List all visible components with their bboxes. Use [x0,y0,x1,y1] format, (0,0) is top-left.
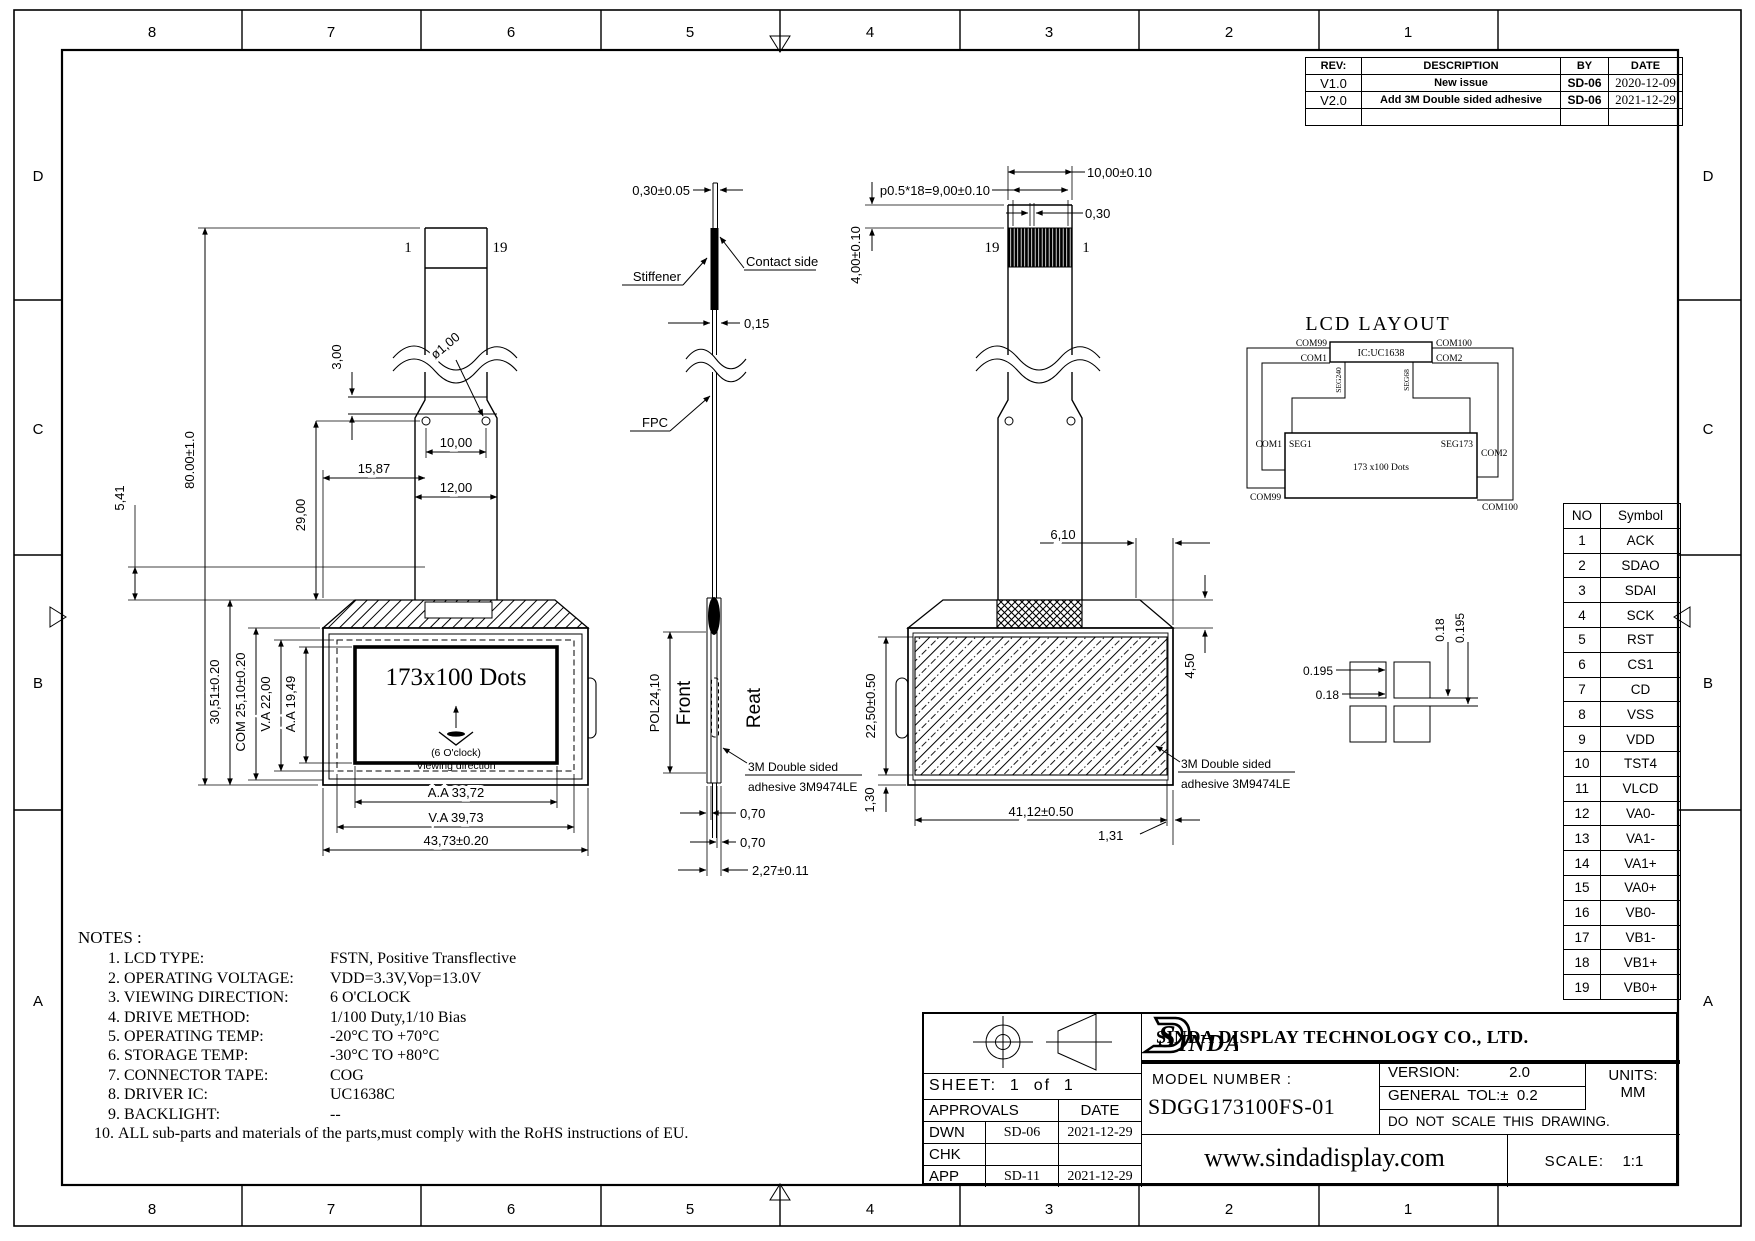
pin-number: 1 [404,240,412,256]
title-block: SHEET: 1 of 1 APPROVALS DATE DWN SD-06 2… [922,1012,1678,1185]
driver-ic: IC:UC1638 [1358,348,1405,359]
approval-role: APP [924,1166,986,1187]
revision-table: REV: DESCRIPTION BY DATE V1.0 New issue … [1305,57,1683,126]
note-item: 9. BACKLIGHT:-- [78,1105,758,1124]
notes-title: NOTES : [78,928,758,947]
zone-row: A [33,993,43,1010]
version-value: 2.0 [1509,1064,1530,1081]
pin-header-no: NO [1564,504,1601,529]
pin-row: 10TST4 [1564,751,1681,776]
website: www.sindadisplay.com [1142,1135,1507,1173]
pin-row: 2SDAO [1564,553,1681,578]
pin-row: 4SCK [1564,603,1681,628]
rev-description: New issue [1362,75,1561,92]
dim-front-pol: 0,70 [740,806,765,821]
pin-number: 19 [985,240,1000,256]
com-label: COM2 [1481,449,1508,459]
note-item: 8. DRIVER IC:UC1638C [78,1085,758,1104]
stiffener-label: Stiffener [633,269,682,284]
back-view: 19 1 10,00±0.10 p0.5*18=9,00±0.10 0,30 4… [848,165,1295,845]
note-item: 5. OPERATING TEMP:-20°C TO +70°C [78,1027,758,1046]
dim-fold: 3,00 [329,344,344,369]
dim-stack-total: 2,27±0.11 [752,863,809,878]
dim-adhesive-height: 22,50±0.50 [863,674,878,739]
pin-row: 3SDAI [1564,578,1681,603]
dim-tail-width: 12,00 [440,480,473,495]
zone-col: 8 [148,1201,156,1218]
dim-dot-gap: 0.18 [1433,618,1447,642]
rev-id: V1.0 [1306,75,1362,92]
approval-by: SD-06 [986,1122,1059,1144]
pin-number: 19 [493,240,508,256]
dim-hole-pitch: 10,00 [440,435,473,450]
zone-col: 3 [1045,1201,1053,1218]
rev-date: 2020-12-09 [1609,75,1683,92]
tolerance-row: GENERAL TOL:± 0.2 [1380,1087,1585,1110]
approval-date: 2021-12-29 [1059,1166,1142,1187]
pin-row: 7CD [1564,677,1681,702]
dim-com-height: COM 25,10±0.20 [233,653,248,752]
model-cell: MODEL NUMBER : SDGG173100FS-01 [1142,1064,1380,1134]
dim-va-height: V.A 22,00 [258,676,273,731]
adhesive-note: adhesive 3M9474LE [1181,777,1290,791]
dim-hole: ø1,00 [428,329,463,362]
pin-table: NO Symbol 1ACK 2SDAO 3SDAI 4SCK 5RST 6CS… [1563,503,1681,1000]
dim-back-pol: 0,70 [740,835,765,850]
pin-row: 16VB0- [1564,900,1681,925]
dots-label: 173 x100 Dots [1353,463,1409,473]
zone-col: 6 [507,1201,515,1218]
revision-row-empty [1306,109,1683,126]
front-face-label: Front [674,680,695,725]
seg-label: SEG1 [1289,440,1312,450]
pin-row: 15VA0+ [1564,875,1681,900]
pin-row: 9VDD [1564,727,1681,752]
zone-row: B [1703,675,1713,692]
rev-by: SD-06 [1561,75,1609,92]
pin-row: 11VLCD [1564,776,1681,801]
com-label: COM1 [1256,440,1283,450]
units-cell: UNITS: MM [1585,1064,1680,1110]
adhesive-note: 3M Double sided [748,760,838,774]
drawing-sheet: 8 7 6 5 4 3 2 1 8 7 6 5 4 3 2 1 D C B A … [0,0,1755,1241]
note-item: 3. VIEWING DIRECTION:6 O'CLOCK [78,988,758,1007]
pad-detail: 0.195 0.18 0.18 0.195 [1303,613,1478,742]
approval-by [986,1144,1059,1166]
rev-header: DESCRIPTION [1362,58,1561,75]
dim-tip: 0,30±0.05 [632,183,690,198]
note-item: 2. OPERATING VOLTAGE:VDD=3.3V,Vop=13.0V [78,969,758,988]
rev-header: REV: [1306,58,1362,75]
zone-row: B [33,675,43,692]
zone-col: 4 [866,24,874,41]
svg-text:INDA: INDA [1177,1031,1238,1057]
dim-total-length: 80.00±1.0 [182,431,197,489]
rear-face-label: Reat [744,687,765,728]
note-item: 1. LCD TYPE:FSTN, Positive Transflective [78,949,758,968]
dim-pad-pitch: p0.5*18=9,00±0.10 [880,183,990,198]
lcd-layout: LCD LAYOUT IC:UC1638 173 x100 Dots COM99… [1247,313,1518,513]
approval-date: 2021-12-29 [1059,1122,1142,1144]
revision-row: V1.0 New issue SD-06 2020-12-09 [1306,75,1683,92]
dim-bare-tail: 4,00±0.10 [848,226,863,284]
pin-header-symbol: Symbol [1601,504,1681,529]
rev-by: SD-06 [1561,92,1609,109]
date-header: DATE [1059,1100,1142,1122]
side-view: 0,30±0.05 Stiffener Contact side 0,15 FP… [622,183,862,878]
scale-cell: SCALE: 1:1 [1507,1134,1680,1187]
no-scale-row: DO NOT SCALE THIS DRAWING. [1380,1110,1680,1134]
zone-col: 4 [866,1201,874,1218]
rev-description: Add 3M Double sided adhesive [1362,92,1561,109]
dim-module-height: 30,51±0.20 [207,660,222,725]
com-label: COM1 [1301,354,1328,364]
approval-role: CHK [924,1144,986,1166]
rev-id: V2.0 [1306,92,1362,109]
units-value: MM [1586,1084,1680,1101]
sheet-number: SHEET: 1 of 1 [924,1074,1142,1100]
com-label: COM99 [1250,493,1281,503]
note-item: 7. CONNECTOR TAPE:COG [78,1066,758,1085]
company-header: S INDA SINDA DISPLAY TECHNOLOGY CO., LTD… [1142,1014,1680,1064]
pin-row: 18VB1+ [1564,950,1681,975]
com-label: COM100 [1482,503,1518,513]
zone-row: D [1703,168,1714,185]
rev-date: 2021-12-29 [1609,92,1683,109]
projection-symbol-cell [924,1014,1142,1074]
display-resolution: 173x100 Dots [386,664,527,691]
pin-number: 1 [1082,240,1090,256]
dim-va-width: V.A 39,73 [428,810,483,825]
dim-dot-gap: 0.18 [1316,688,1340,702]
pin-row: 8VSS [1564,702,1681,727]
version-label: VERSION: [1380,1064,1460,1081]
zone-row: C [1703,421,1714,438]
zone-col: 7 [327,1201,335,1218]
seg-label: SEG68 [1402,369,1411,391]
notes-section: NOTES : 1. LCD TYPE:FSTN, Positive Trans… [78,928,758,1143]
scale-label: SCALE: [1545,1153,1604,1170]
zone-row: C [33,421,44,438]
no-scale-note: DO NOT SCALE THIS DRAWING. [1380,1114,1610,1129]
pin-row: 13VA1- [1564,826,1681,851]
approval-role: DWN [924,1122,986,1144]
viewing-clock: (6 O'clock) [431,747,481,759]
pin-row: 5RST [1564,627,1681,652]
version-row: VERSION: 2.0 [1380,1064,1585,1087]
zone-col: 7 [327,24,335,41]
pin-row: 14VA1+ [1564,851,1681,876]
zone-col: 8 [148,24,156,41]
dim-adhesive-width: 41,12±0.50 [1009,804,1074,819]
pin-row: 19VB0+ [1564,975,1681,1000]
dim-tail-offset: 15,87 [358,461,391,476]
dim-edge-bottom: 1,30 [862,787,877,812]
note-item: 4. DRIVE METHOD:1/100 Duty,1/10 Bias [78,1008,758,1027]
front-view: 1 19 173x100 Dots (6 O'clock) Viewing di… [112,228,596,856]
general-tolerance: GENERAL TOL:± 0.2 [1380,1087,1538,1104]
note-item: 6. STORAGE TEMP:-30°C TO +80°C [78,1046,758,1065]
approvals-header: APPROVALS [924,1100,1059,1122]
dim-tail-width-top: 10,00±0.10 [1087,165,1152,180]
dim-corner: 4,50 [1182,653,1197,678]
approval-date [1059,1144,1142,1166]
pin-row: 1ACK [1564,528,1681,553]
note-item: 10.ALL sub-parts and materials of the pa… [78,1124,758,1143]
zone-col: 3 [1045,24,1053,41]
zone-col: 6 [507,24,515,41]
rev-header: BY [1561,58,1609,75]
zone-col: 5 [686,24,694,41]
pin-row: 17VB1- [1564,925,1681,950]
viewing-direction: Viewing direction [416,760,495,772]
com-label: COM99 [1296,339,1327,349]
dim-aa-height: A.A 19,49 [283,676,298,732]
zone-col: 1 [1404,1201,1412,1218]
dim-fpc-thickness: 0,15 [744,316,769,331]
seg-label: SEG173 [1441,440,1473,450]
zone-col: 5 [686,1201,694,1218]
dim-module-width: 43,73±0.20 [424,833,489,848]
dim-dot-gap: 0.195 [1303,664,1333,678]
zone-row: A [1703,993,1713,1010]
com-label: COM2 [1436,354,1463,364]
units-label: UNITS: [1586,1064,1680,1084]
zone-row: D [33,168,44,185]
adhesive-note: 3M Double sided [1181,757,1271,771]
dim-dot-gap: 0.195 [1453,613,1467,643]
pin-row: 6CS1 [1564,652,1681,677]
dim-top-offset: 5,41 [112,485,127,510]
svg-text:S: S [1158,1018,1176,1054]
zone-col: 1 [1404,24,1412,41]
contact-side-label: Contact side [746,254,818,269]
dim-tail-length: 29,00 [293,499,308,532]
model-number-label: MODEL NUMBER : [1142,1064,1379,1088]
adhesive-note: adhesive 3M9474LE [748,780,857,794]
dim-pol: POL24,10 [647,674,662,733]
revision-row: V2.0 Add 3M Double sided adhesive SD-06 … [1306,92,1683,109]
scale-value: 1:1 [1622,1153,1643,1170]
seg-label: SEG240 [1334,367,1343,393]
model-number: SDGG173100FS-01 [1142,1088,1379,1120]
dim-pad-width: 0,30 [1085,206,1110,221]
zone-col: 2 [1225,24,1233,41]
dim-edge-right: 1,31 [1098,828,1123,843]
dim-gap: 6,10 [1050,527,1075,542]
dim-aa-width: A.A 33,72 [428,785,484,800]
zone-col: 2 [1225,1201,1233,1218]
approval-by: SD-11 [986,1166,1059,1187]
lcd-layout-title: LCD LAYOUT [1305,313,1450,335]
pin-row: 12VA0- [1564,801,1681,826]
website-cell: www.sindadisplay.com [1142,1134,1507,1187]
rev-header: DATE [1609,58,1683,75]
fpc-label: FPC [642,415,668,430]
com-label: COM100 [1436,339,1472,349]
